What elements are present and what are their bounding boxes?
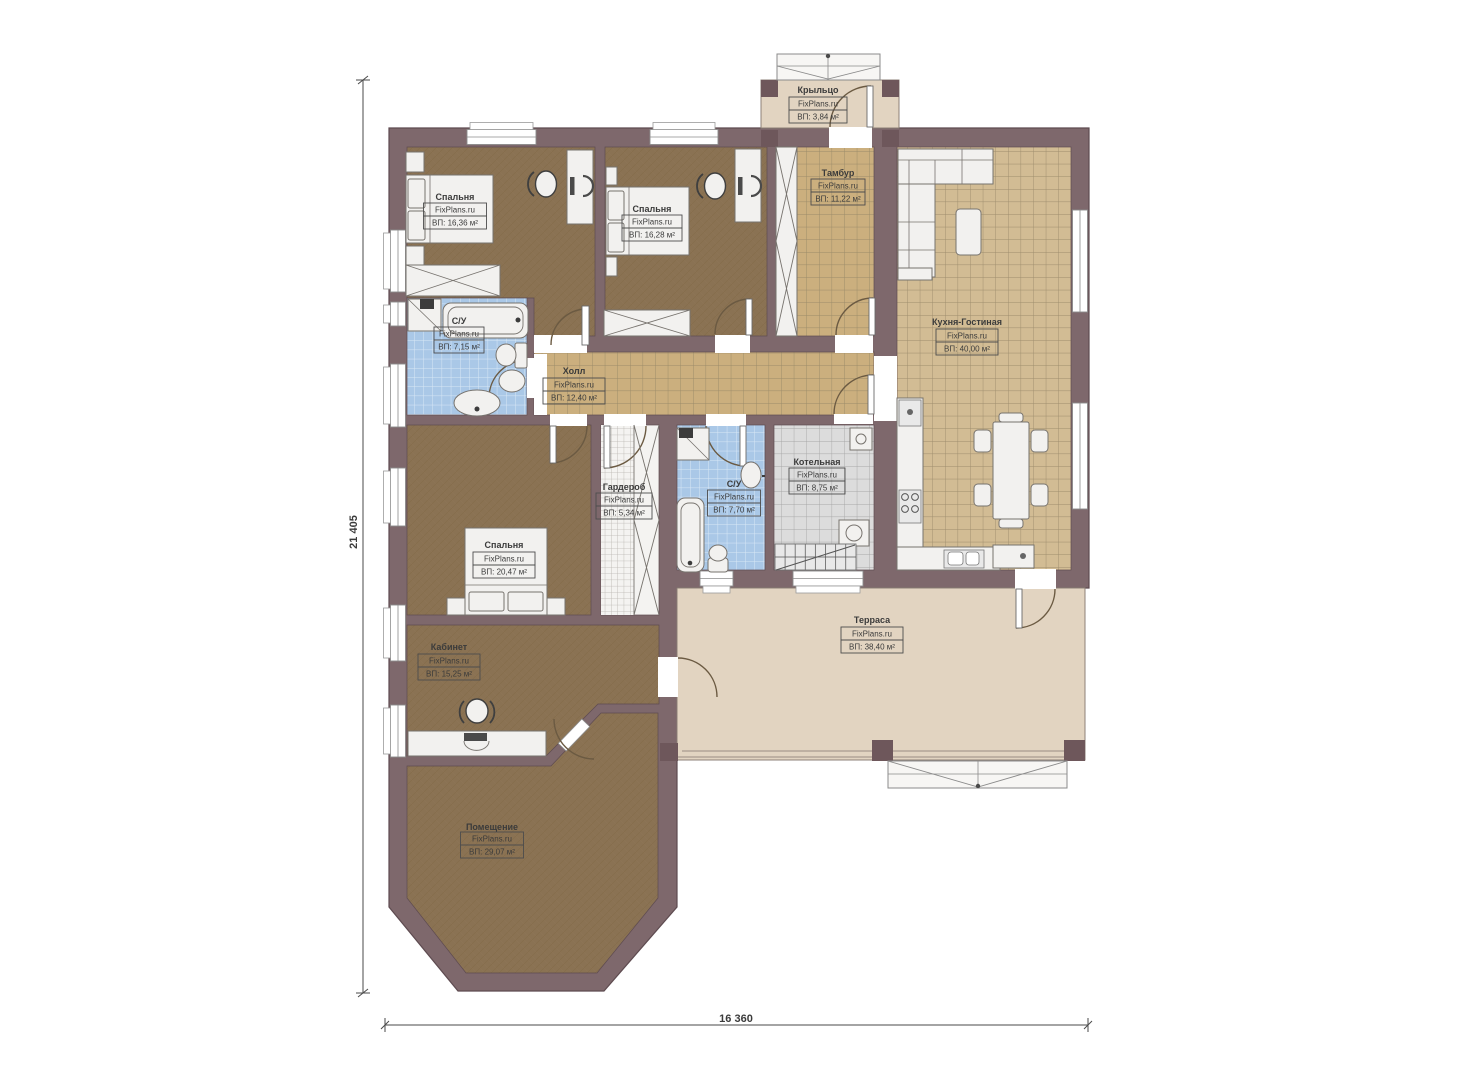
svg-text:16 360: 16 360 [719, 1013, 753, 1025]
svg-text:Спальня: Спальня [633, 204, 672, 214]
svg-text:21 405: 21 405 [348, 515, 360, 549]
svg-text:Гардероб: Гардероб [603, 482, 646, 492]
svg-text:FixPlans.ru: FixPlans.ru [797, 471, 837, 480]
svg-text:Кухня-Гостиная: Кухня-Гостиная [932, 317, 1002, 327]
svg-text:ВП: 7,70 м²: ВП: 7,70 м² [713, 506, 755, 515]
svg-text:ВП: 3,84 м²: ВП: 3,84 м² [797, 113, 839, 122]
svg-text:ВП: 38,40 м²: ВП: 38,40 м² [849, 643, 895, 652]
svg-text:FixPlans.ru: FixPlans.ru [435, 206, 475, 215]
svg-text:ВП: 12,40 м²: ВП: 12,40 м² [551, 394, 597, 403]
svg-text:Терраса: Терраса [854, 615, 891, 625]
svg-text:FixPlans.ru: FixPlans.ru [818, 182, 858, 191]
svg-text:ВП: 15,25 м²: ВП: 15,25 м² [426, 670, 472, 679]
svg-text:FixPlans.ru: FixPlans.ru [429, 657, 469, 666]
svg-text:FixPlans.ru: FixPlans.ru [947, 332, 987, 341]
svg-text:FixPlans.ru: FixPlans.ru [632, 218, 672, 227]
svg-text:ВП: 5,34 м²: ВП: 5,34 м² [603, 509, 645, 518]
svg-text:Тамбур: Тамбур [822, 168, 855, 178]
svg-text:FixPlans.ru: FixPlans.ru [852, 630, 892, 639]
svg-text:Котельная: Котельная [793, 457, 840, 467]
svg-text:ВП: 40,00 м²: ВП: 40,00 м² [944, 345, 990, 354]
svg-text:Кабинет: Кабинет [431, 642, 468, 652]
svg-text:С/У: С/У [727, 479, 742, 489]
svg-text:FixPlans.ru: FixPlans.ru [604, 496, 644, 505]
svg-text:FixPlans.ru: FixPlans.ru [484, 555, 524, 564]
svg-text:FixPlans.ru: FixPlans.ru [439, 330, 479, 339]
svg-text:ВП: 16,36 м²: ВП: 16,36 м² [432, 219, 478, 228]
svg-text:ВП: 20,47 м²: ВП: 20,47 м² [481, 568, 527, 577]
svg-text:Спальня: Спальня [485, 540, 524, 550]
svg-text:ВП: 11,22 м²: ВП: 11,22 м² [815, 195, 861, 204]
svg-text:С/У: С/У [452, 316, 467, 326]
svg-text:Спальня: Спальня [436, 192, 475, 202]
svg-text:Помещение: Помещение [466, 822, 518, 832]
svg-text:ВП: 8,75 м²: ВП: 8,75 м² [796, 484, 838, 493]
svg-text:ВП: 7,15 м²: ВП: 7,15 м² [438, 343, 480, 352]
svg-text:FixPlans.ru: FixPlans.ru [554, 381, 594, 390]
svg-text:FixPlans.ru: FixPlans.ru [472, 835, 512, 844]
svg-text:ВП: 16,28 м²: ВП: 16,28 м² [629, 231, 675, 240]
svg-text:ВП: 29,07 м²: ВП: 29,07 м² [469, 848, 515, 857]
svg-text:Холл: Холл [563, 366, 586, 376]
svg-text:Крыльцо: Крыльцо [798, 85, 839, 95]
svg-text:FixPlans.ru: FixPlans.ru [798, 100, 838, 109]
svg-text:FixPlans.ru: FixPlans.ru [714, 493, 754, 502]
